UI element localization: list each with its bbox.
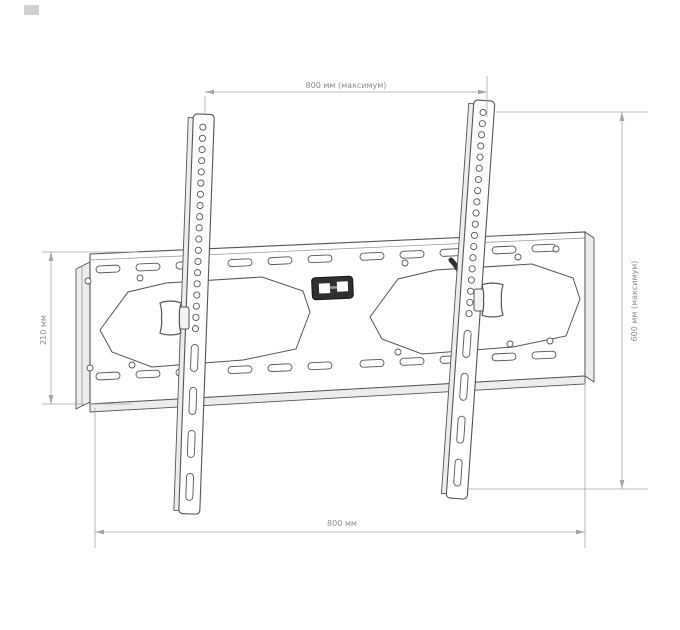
rail-hole [466,310,473,317]
rail-hole [477,143,484,150]
plate-slot [308,362,332,370]
bubble-level-window-right [337,281,348,291]
rail-hole [195,258,201,264]
plate-hole [402,260,408,266]
rail-hole [198,157,204,163]
plate-hole [87,365,93,371]
rail-hole [471,232,478,239]
plate-hole [553,246,559,252]
rail-hole [197,191,203,197]
right-clamp-body [482,283,503,317]
rail-hole [193,314,199,320]
dimension-top: 800 мм (максимум) [205,76,487,117]
wall-plate [76,232,594,412]
bracket-technical-drawing: 800 мм (максимум) 600 мм (максимум) 210 … [0,0,680,630]
rail-hole [194,281,200,287]
rail-hole [197,202,203,208]
rail-slot [456,416,465,443]
plate-slot [268,364,292,372]
plate-right-flange [585,232,594,382]
rail-hole [468,277,475,284]
rail-hole [200,124,206,130]
rail-hole [194,292,200,298]
dimension-left-label: 210 мм [39,315,48,345]
logo-mark [24,5,39,15]
plate-slot [96,372,120,380]
page: { "colors": { "outline": "#555555", "lig… [0,0,680,630]
rail-hole [194,269,200,275]
plate-slot [532,351,556,359]
rail-hole [475,176,482,183]
plate-slot [400,250,424,258]
rail-hole [479,120,486,127]
arrowhead [49,395,54,404]
rail-hole [480,109,487,116]
plate-slot [492,353,516,361]
rail-hole [196,213,202,219]
rail-hole [467,288,474,295]
plate-hole [137,275,143,281]
rail-hole [474,187,481,194]
plate-slot [136,370,160,378]
rail-hole [199,135,205,141]
rail-hole [470,254,477,261]
plate-slot [228,259,252,267]
right-clamp-tab [474,289,484,311]
rail-slot [462,330,471,357]
rail-hole [473,210,480,217]
plate-slot [308,255,332,263]
rail-slot [453,459,462,486]
plate-slot [228,366,252,374]
rail-hole [193,303,199,309]
rail-slot [186,473,194,500]
rail-hole [470,243,477,250]
plate-slot [532,244,556,252]
rail-slot [459,373,468,400]
dimension-bottom-label: 800 мм [327,519,357,528]
rail-slot [189,387,197,414]
left-clamp-body [160,301,181,335]
plate-hole [129,362,135,368]
plate-slot [360,252,384,260]
arrowhead [49,252,54,261]
rail-slot [190,344,198,371]
plate-slot [492,246,516,254]
rail-hole [196,225,202,231]
plate-hole [85,278,91,284]
plate-hole [395,349,401,355]
rail-hole [472,221,479,228]
left-clamp-tab [179,307,189,329]
arrowhead [205,90,214,95]
rail-hole [476,165,483,172]
rail-hole [474,199,481,206]
plate-hole [515,254,521,260]
dimension-right-label: 600 мм (максимум) [630,261,639,342]
plate-hole [507,341,513,347]
rail-hole [195,247,201,253]
plate-slot [136,263,160,271]
plate-slot [400,357,424,365]
rail-hole [198,169,204,175]
arrowhead [576,530,585,535]
bubble-level [312,276,354,300]
rail-hole [192,325,198,331]
plate-slot [96,265,120,273]
rail-hole [199,146,205,152]
rail-hole [469,266,476,273]
arrowhead [620,112,625,121]
arrowhead [95,530,104,535]
rail-hole [478,131,485,138]
bubble-level-window-left [319,283,330,293]
dimension-top-label: 800 мм (максимум) [306,81,387,90]
rail-hole [467,299,474,306]
arrowhead [620,480,625,489]
arrowhead [478,90,487,95]
plate-slot [268,257,292,265]
rail-slot [187,430,195,457]
plate-hole [547,338,553,344]
plate-slot [360,359,384,367]
rail-hole [196,236,202,242]
rail-hole [198,180,204,186]
rail-hole [477,154,484,161]
